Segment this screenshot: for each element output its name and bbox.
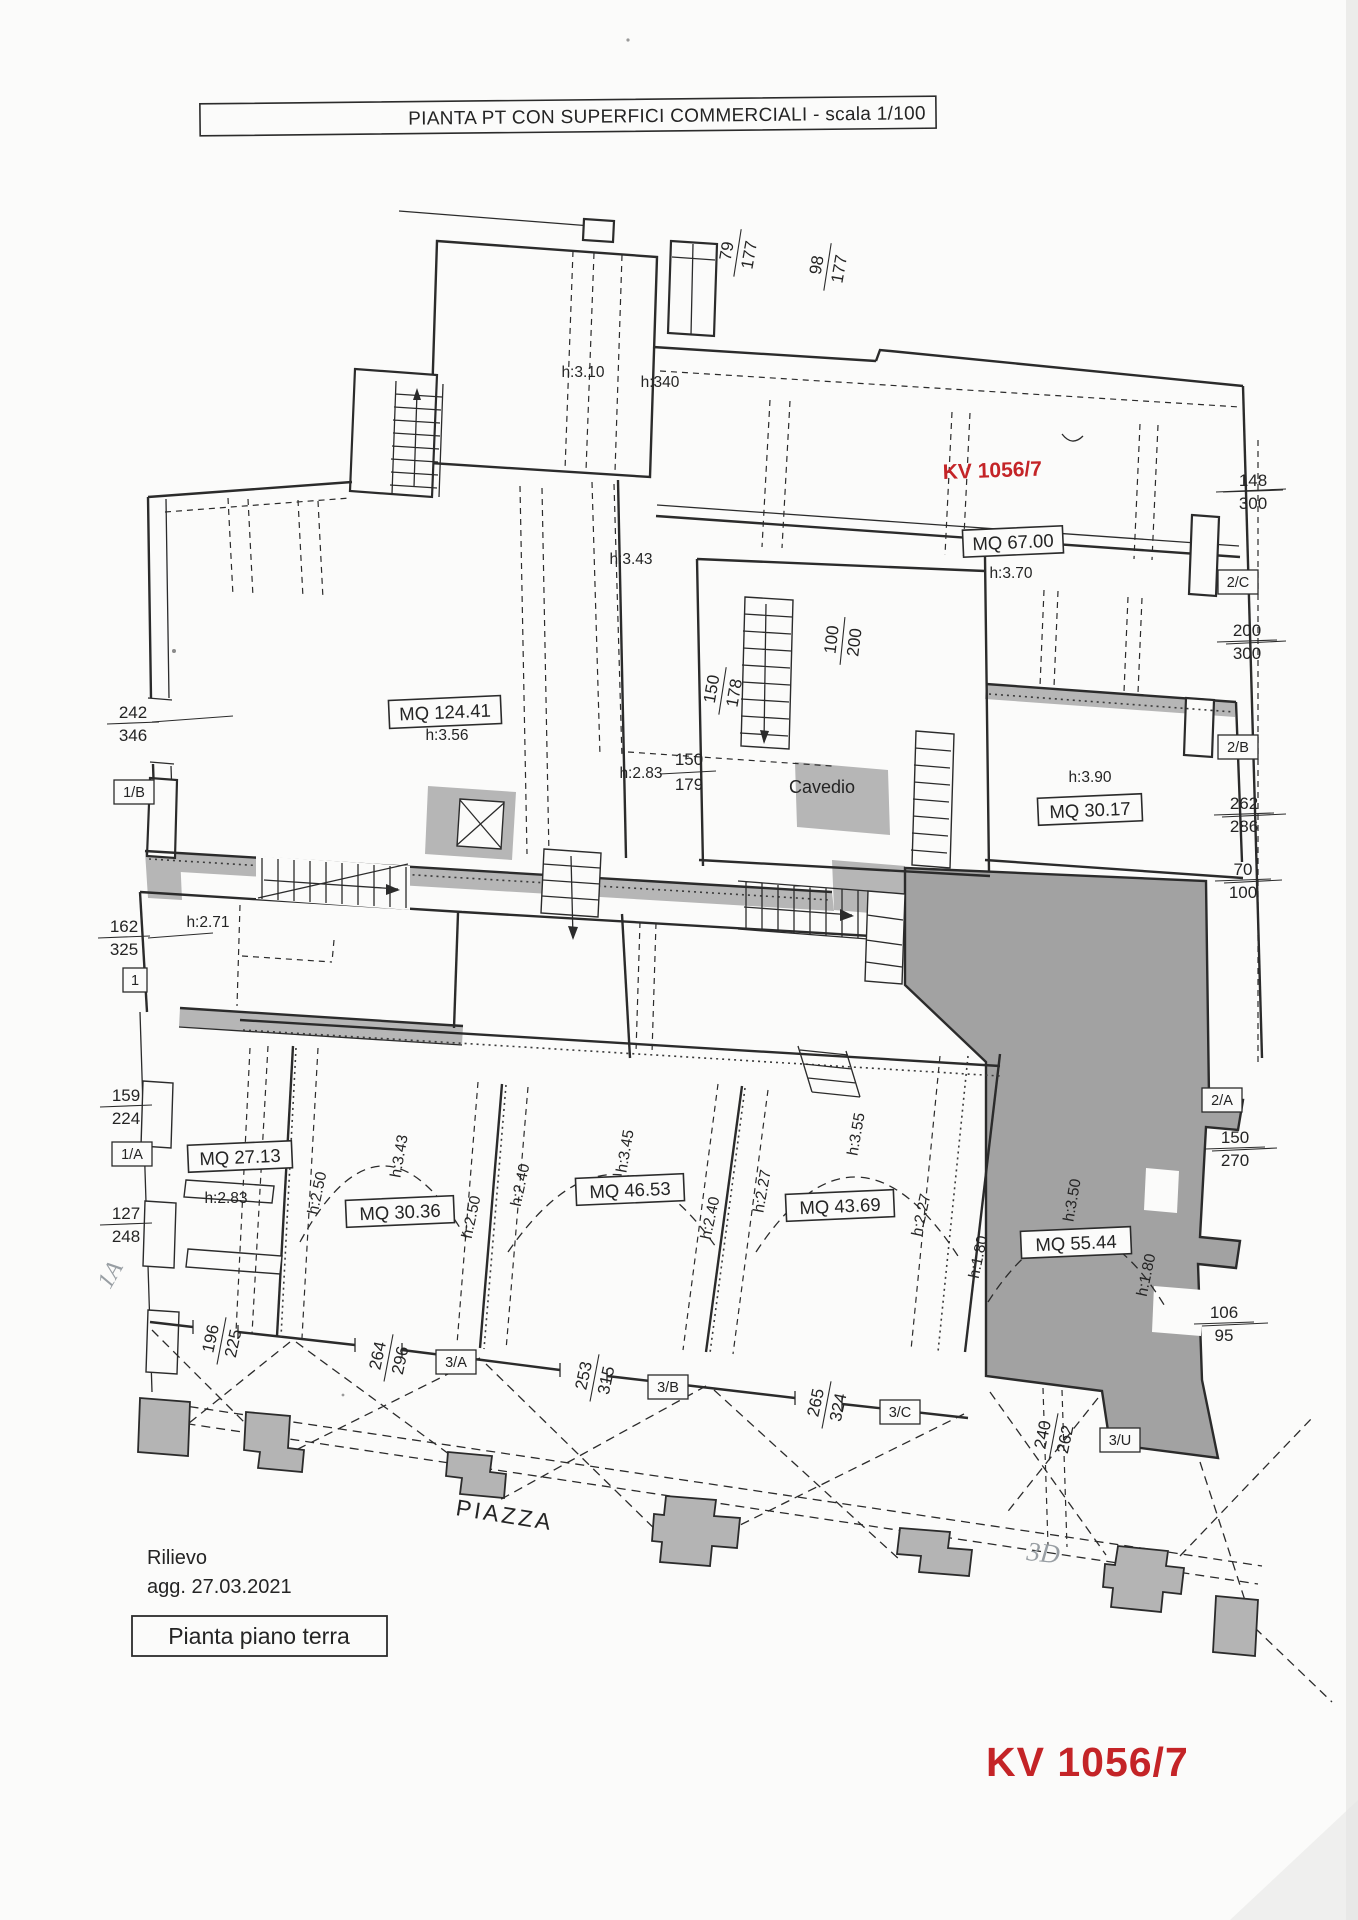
svg-text:200: 200 xyxy=(843,627,865,657)
svg-text:1/B: 1/B xyxy=(123,785,145,801)
survey-note-line1: Rilievo xyxy=(147,1547,207,1569)
svg-text:3/B: 3/B xyxy=(657,1380,679,1396)
svg-text:127: 127 xyxy=(112,1204,140,1223)
dim-196-225: 196225 xyxy=(196,1313,247,1369)
height-h227a: h:2.27 xyxy=(750,1169,774,1214)
room-label-mq3017: MQ 30.17 xyxy=(1037,794,1142,826)
svg-text:1: 1 xyxy=(131,973,139,989)
dim-98-177: 98177 xyxy=(803,240,853,295)
height-h240a: h:2.40 xyxy=(508,1162,534,1208)
dim-79-177: 79177 xyxy=(713,226,763,281)
title-bar: PIANTA PT CON SUPERFICI COMMERCIALI - sc… xyxy=(200,96,936,136)
room-height-mq124: h:3.56 xyxy=(425,727,468,744)
height-h271: h:2.71 xyxy=(186,914,229,931)
svg-text:3/U: 3/U xyxy=(1109,1433,1132,1449)
survey-note-line2: agg. 27.03.2021 xyxy=(147,1576,292,1598)
svg-text:98: 98 xyxy=(806,254,828,276)
room-label-mq4369: MQ 43.69 xyxy=(785,1190,894,1222)
height-h240b: h:2.40 xyxy=(698,1195,724,1241)
handwritten-note-right: 3D xyxy=(1024,1536,1061,1569)
svg-text:2/A: 2/A xyxy=(1211,1093,1233,1109)
height-h343: h:3.43 xyxy=(609,551,652,568)
svg-text:MQ 55.44: MQ 55.44 xyxy=(1035,1231,1117,1256)
unit-tag-2a: 2/A xyxy=(1202,1088,1242,1112)
height-h250b: h:2.50 xyxy=(459,1194,485,1240)
room-height-mq2713: h:2.83 xyxy=(204,1190,247,1207)
svg-text:296: 296 xyxy=(388,1345,412,1377)
dim-150-178: 150178 xyxy=(698,664,748,719)
svg-text:179: 179 xyxy=(675,775,703,794)
svg-text:242: 242 xyxy=(119,703,147,722)
svg-text:325: 325 xyxy=(110,940,138,959)
svg-text:PIAZZA: PIAZZA xyxy=(454,1494,555,1535)
svg-text:3D: 3D xyxy=(1024,1536,1061,1569)
svg-text:MQ 67.00: MQ 67.00 xyxy=(972,530,1054,555)
dim-148-300: 148300 xyxy=(1223,471,1283,513)
svg-text:2/B: 2/B xyxy=(1227,740,1249,756)
svg-text:150: 150 xyxy=(700,673,724,704)
unit-tag-3u: 3/U xyxy=(1100,1428,1140,1452)
svg-text:79: 79 xyxy=(716,240,738,262)
room-label-mq124: MQ 124.41 xyxy=(388,696,501,729)
svg-text:3/A: 3/A xyxy=(445,1355,467,1371)
svg-text:h:2.40: h:2.40 xyxy=(698,1195,724,1241)
unit-tag-3a: 3/A xyxy=(436,1350,476,1374)
svg-text:159: 159 xyxy=(112,1086,140,1105)
room-height-mq3017: h:3.90 xyxy=(1068,769,1111,786)
svg-text:324: 324 xyxy=(826,1392,850,1424)
room-label-mq2713: MQ 27.13 xyxy=(187,1141,292,1173)
height-h340: h:340 xyxy=(641,374,680,391)
handwritten-note-left: 1A xyxy=(93,1257,129,1293)
svg-text:200: 200 xyxy=(1233,621,1261,640)
svg-text:177: 177 xyxy=(738,239,762,270)
unit-tag-1a: 1/A xyxy=(112,1142,152,1166)
height-h227b: h:2.27 xyxy=(909,1192,935,1238)
svg-text:148: 148 xyxy=(1239,471,1267,490)
svg-text:150: 150 xyxy=(675,750,703,769)
svg-text:100: 100 xyxy=(820,624,842,654)
svg-text:h:2.27: h:2.27 xyxy=(909,1192,935,1238)
svg-text:224: 224 xyxy=(112,1109,140,1128)
room-label-mq67: MQ 67.00 xyxy=(962,526,1063,557)
svg-text:262: 262 xyxy=(1230,794,1258,813)
svg-text:100: 100 xyxy=(1229,883,1257,902)
svg-text:300: 300 xyxy=(1239,494,1267,513)
unit-tag-2b: 2/B xyxy=(1218,735,1258,759)
height-h310: h:3.10 xyxy=(561,364,604,381)
dim-265-324: 265324 xyxy=(801,1377,852,1433)
svg-text:106: 106 xyxy=(1210,1303,1238,1322)
dim-264-296: 264296 xyxy=(363,1330,414,1386)
svg-text:286: 286 xyxy=(1230,817,1258,836)
svg-text:1A: 1A xyxy=(93,1257,129,1293)
height-h250a: h:2.50 xyxy=(305,1170,331,1216)
kv-reference-bottom: KV 1056/7 xyxy=(986,1739,1189,1785)
room-height-mq4369: h:3.55 xyxy=(844,1112,868,1157)
plan-shading-dark-unit xyxy=(905,868,1243,1458)
svg-text:95: 95 xyxy=(1215,1326,1234,1345)
svg-text:300: 300 xyxy=(1233,644,1261,663)
unit-tag-3b: 3/B xyxy=(648,1375,688,1399)
dim-100-200: 100200 xyxy=(819,615,867,668)
svg-text:225: 225 xyxy=(221,1328,245,1360)
dim-253-315: 253315 xyxy=(569,1350,620,1406)
scanned-floor-plan-page: PIANTA PT CON SUPERFICI COMMERCIALI - sc… xyxy=(0,0,1358,1920)
svg-text:3/C: 3/C xyxy=(889,1405,912,1421)
svg-text:MQ 124.41: MQ 124.41 xyxy=(399,700,491,725)
svg-text:248: 248 xyxy=(112,1227,140,1246)
dim-242-346: 242346 xyxy=(107,703,159,745)
unit-tag-1b: 1/B xyxy=(114,780,154,804)
plan-caption: Pianta piano terra xyxy=(132,1616,387,1656)
svg-text:2/C: 2/C xyxy=(1227,575,1250,591)
svg-text:h:3.55: h:3.55 xyxy=(844,1112,868,1157)
svg-text:h:2.27: h:2.27 xyxy=(750,1169,774,1214)
svg-text:270: 270 xyxy=(1221,1151,1249,1170)
svg-text:162: 162 xyxy=(110,917,138,936)
height-h283-corridor: h:2.83 xyxy=(619,765,662,782)
svg-text:1/A: 1/A xyxy=(121,1147,143,1163)
room-label-mq4653: MQ 46.53 xyxy=(575,1174,684,1206)
svg-text:262: 262 xyxy=(1053,1424,1077,1456)
svg-text:h:2.50: h:2.50 xyxy=(305,1170,331,1216)
floor-plan-svg: PIANTA PT CON SUPERFICI COMMERCIALI - sc… xyxy=(0,0,1358,1920)
svg-text:MQ 46.53: MQ 46.53 xyxy=(589,1178,671,1203)
svg-text:MQ 43.69: MQ 43.69 xyxy=(799,1194,881,1219)
svg-text:315: 315 xyxy=(594,1365,618,1397)
kv-reference-top: KV 1056/7 xyxy=(942,458,1042,484)
room-height-mq4653: h:3.45 xyxy=(613,1129,637,1174)
svg-text:h:2.40: h:2.40 xyxy=(508,1162,534,1208)
svg-text:346: 346 xyxy=(119,726,147,745)
room-label-mq5544: MQ 55.44 xyxy=(1020,1227,1131,1259)
svg-text:177: 177 xyxy=(828,253,852,284)
svg-text:MQ 27.13: MQ 27.13 xyxy=(199,1145,281,1170)
piazza-label: PIAZZA xyxy=(454,1494,555,1535)
svg-text:h:3.45: h:3.45 xyxy=(613,1129,637,1174)
room-label-mq3036: MQ 30.36 xyxy=(345,1196,454,1228)
room-height-mq67: h:3.70 xyxy=(989,565,1032,582)
svg-text:MQ 30.17: MQ 30.17 xyxy=(1049,798,1131,823)
svg-text:h:2.50: h:2.50 xyxy=(459,1194,485,1240)
svg-text:Pianta piano terra: Pianta piano terra xyxy=(168,1623,350,1649)
cavedio-label: Cavedio xyxy=(789,777,855,797)
unit-tag-1: 1 xyxy=(123,968,147,992)
svg-text:70: 70 xyxy=(1234,860,1253,879)
unit-tag-2c: 2/C xyxy=(1218,570,1258,594)
svg-text:150: 150 xyxy=(1221,1128,1249,1147)
svg-text:MQ 30.36: MQ 30.36 xyxy=(359,1200,441,1225)
unit-tag-3c: 3/C xyxy=(880,1400,920,1424)
